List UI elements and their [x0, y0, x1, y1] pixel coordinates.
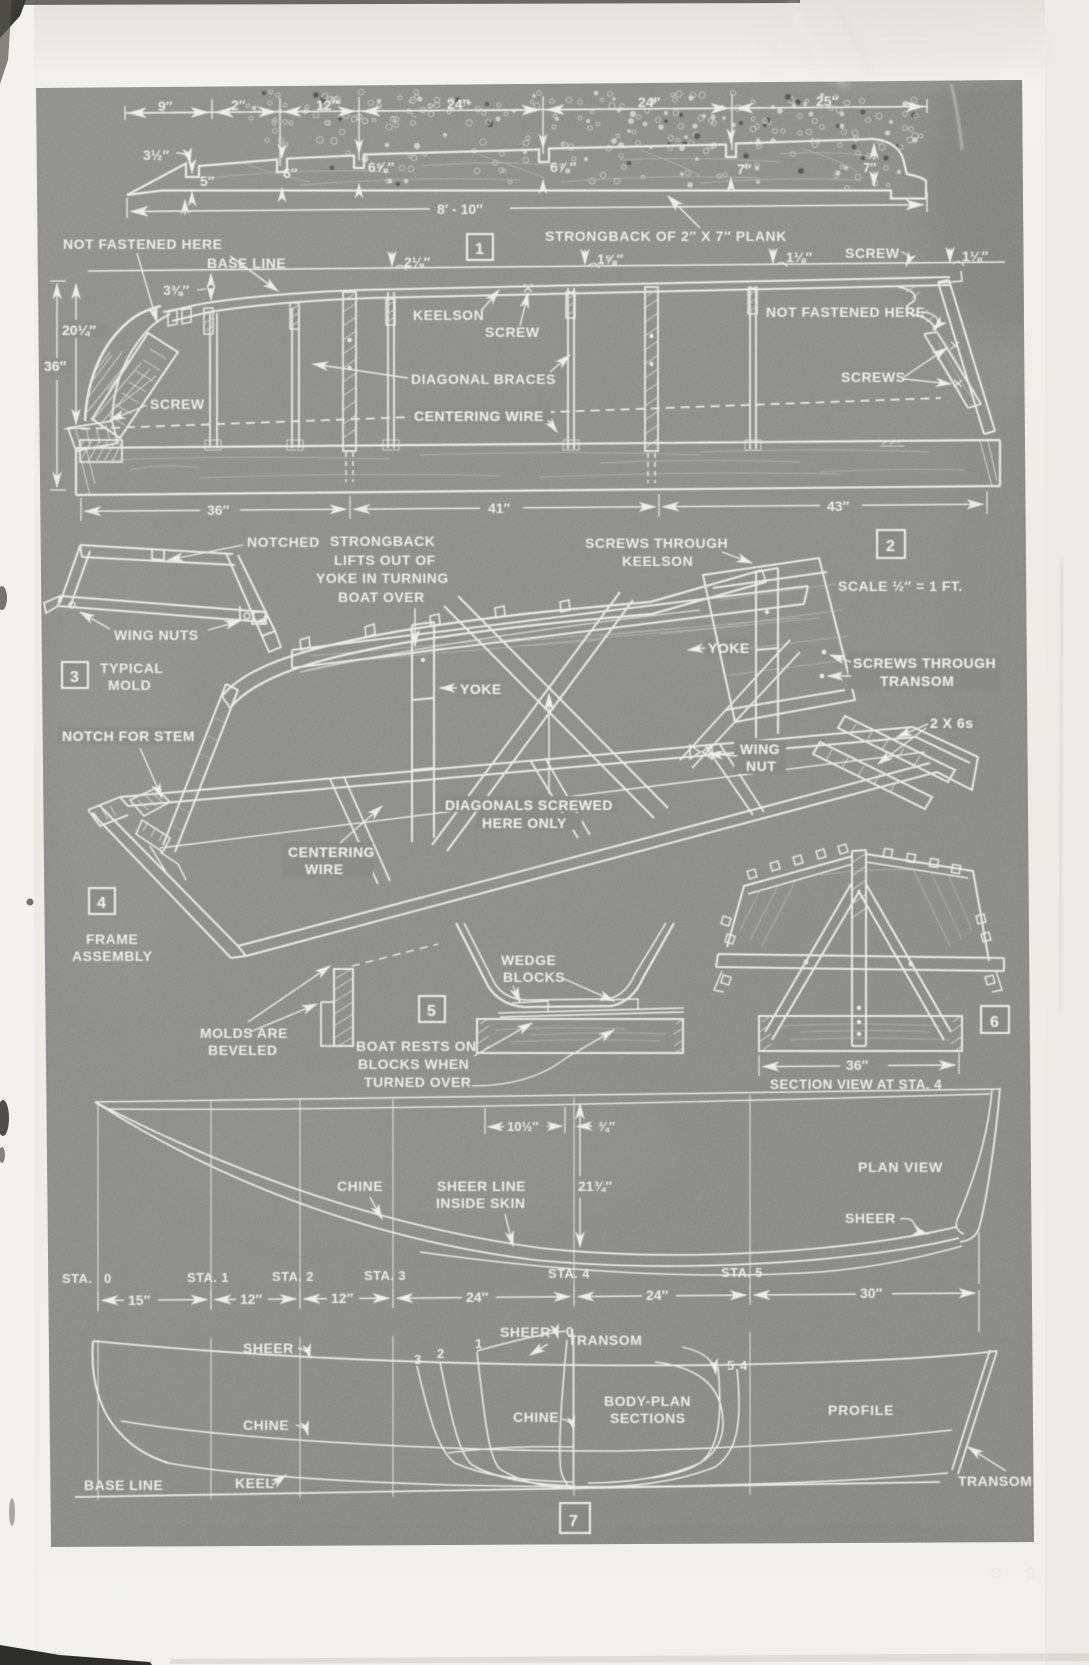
svg-text:CHINE: CHINE [337, 1178, 383, 1194]
svg-text:5″: 5″ [200, 173, 215, 189]
svg-text:25″: 25″ [816, 93, 839, 109]
svg-text:SCALE ½″ = 1 FT.: SCALE ½″ = 1 FT. [838, 578, 963, 594]
svg-text:6⅝″: 6⅝″ [368, 159, 394, 175]
svg-text:STA. 1: STA. 1 [187, 1270, 229, 1285]
svg-text:BASE LINE: BASE LINE [207, 255, 286, 271]
svg-text:DIAGONAL BRACES: DIAGONAL BRACES [411, 371, 556, 387]
svg-text:24″: 24″ [447, 96, 470, 112]
svg-text:INSIDE SKIN: INSIDE SKIN [436, 1195, 526, 1211]
svg-text:SCREW: SCREW [845, 245, 900, 261]
svg-text:NOTCHED: NOTCHED [247, 534, 320, 550]
svg-text:HERE ONLY: HERE ONLY [482, 815, 567, 831]
svg-text:NOT FASTENED HERE: NOT FASTENED HERE [63, 236, 222, 252]
svg-text:2″: 2″ [231, 97, 246, 113]
svg-text:24″: 24″ [466, 1289, 489, 1305]
svg-text:SCREWS THROUGH: SCREWS THROUGH [585, 535, 728, 551]
svg-text:7: 7 [569, 1513, 578, 1530]
svg-text:NOTCH FOR STEM: NOTCH FOR STEM [62, 728, 195, 744]
svg-text:CHINE: CHINE [513, 1409, 559, 1425]
svg-text:2⅛″: 2⅛″ [404, 254, 430, 270]
svg-text:30″: 30″ [860, 1285, 883, 1301]
svg-text:1⅛″: 1⅛″ [786, 249, 812, 265]
svg-text:BLOCKS WHEN: BLOCKS WHEN [358, 1056, 469, 1072]
svg-text:ASSEMBLY: ASSEMBLY [72, 948, 153, 964]
svg-text:DIAGONALS SCREWED: DIAGONALS SCREWED [445, 797, 613, 813]
svg-text:5: 5 [427, 1003, 436, 1020]
svg-text:BOAT RESTS ON: BOAT RESTS ON [356, 1038, 477, 1054]
svg-text:YOKE IN TURNING: YOKE IN TURNING [316, 570, 449, 586]
svg-text:12″: 12″ [240, 1291, 263, 1307]
svg-text:9″: 9″ [158, 98, 173, 114]
svg-text:21¾″: 21¾″ [578, 1178, 612, 1194]
svg-text:SCREW: SCREW [150, 396, 205, 412]
svg-text:2 X 6s: 2 X 6s [930, 715, 973, 731]
svg-text:24″: 24″ [638, 94, 661, 110]
svg-text:BEVELED: BEVELED [208, 1042, 278, 1058]
svg-text:TRANSOM: TRANSOM [568, 1332, 642, 1348]
svg-text:BASE LINE: BASE LINE [84, 1477, 163, 1493]
svg-text:YOKE: YOKE [708, 640, 750, 656]
svg-text:24″: 24″ [646, 1287, 669, 1303]
svg-text:NUT: NUT [746, 758, 776, 774]
svg-text:STA. 3: STA. 3 [364, 1268, 406, 1283]
svg-text:TURNED OVER: TURNED OVER [364, 1074, 471, 1090]
svg-text:2: 2 [437, 1346, 444, 1361]
svg-text:STA. 4: STA. 4 [548, 1266, 590, 1281]
svg-text:STA.: STA. [62, 1271, 92, 1286]
svg-text:KEELSON: KEELSON [622, 553, 693, 569]
svg-text:KEELSON: KEELSON [413, 307, 484, 323]
svg-text:BOAT OVER: BOAT OVER [338, 589, 425, 605]
svg-text:0: 0 [104, 1271, 112, 1286]
svg-text:SECTIONS: SECTIONS [610, 1410, 686, 1426]
svg-text:SHEER: SHEER [845, 1210, 896, 1226]
svg-text:6⅞″: 6⅞″ [550, 159, 576, 175]
svg-text:10½″: 10½″ [507, 1119, 539, 1134]
svg-text:G: G [990, 1565, 1002, 1582]
svg-text:BLOCKS: BLOCKS [503, 969, 565, 985]
svg-text:STA. 5: STA. 5 [721, 1265, 763, 1280]
svg-text:12″: 12″ [316, 97, 339, 113]
svg-text:20¼″: 20¼″ [62, 322, 96, 338]
svg-text:YOKE: YOKE [460, 681, 502, 697]
svg-text:36″: 36″ [846, 1057, 869, 1073]
svg-text:CENTERING WIRE: CENTERING WIRE [414, 408, 544, 424]
svg-text:4: 4 [97, 895, 106, 912]
svg-text:BODY-PLAN: BODY-PLAN [604, 1393, 691, 1409]
svg-text:TRANSOM: TRANSOM [880, 673, 954, 689]
svg-text:3⅜″: 3⅜″ [163, 282, 189, 298]
svg-text:4: 4 [740, 1358, 748, 1373]
svg-text:8′ - 10″: 8′ - 10″ [437, 201, 483, 217]
svg-text:¾″: ¾″ [598, 1119, 615, 1134]
svg-text:1: 1 [475, 241, 484, 258]
svg-text:SCREW: SCREW [485, 324, 540, 340]
svg-text:TYPICAL: TYPICAL [100, 660, 163, 676]
svg-text:6: 6 [990, 1014, 999, 1031]
svg-text:SHEER: SHEER [243, 1340, 294, 1356]
svg-text:5: 5 [727, 1358, 734, 1373]
svg-text:FRAME: FRAME [86, 931, 138, 947]
svg-text:STRONGBACK: STRONGBACK [330, 533, 435, 549]
svg-text:MOLD: MOLD [108, 677, 151, 693]
svg-text:12″: 12″ [331, 1290, 354, 1306]
svg-text:36″: 36″ [44, 358, 67, 374]
svg-text:TRANSOM: TRANSOM [958, 1473, 1032, 1489]
svg-text:1⅝″: 1⅝″ [597, 251, 623, 267]
svg-text:1: 1 [475, 1336, 482, 1351]
svg-text:7″: 7″ [737, 161, 752, 177]
svg-text:1⅛″: 1⅛″ [962, 248, 988, 264]
svg-text:KEEL: KEEL [235, 1475, 274, 1491]
svg-text:3: 3 [414, 1352, 421, 1367]
svg-text:3½″: 3½″ [143, 147, 169, 163]
svg-text:WIRE: WIRE [305, 861, 344, 877]
svg-text:2: 2 [886, 538, 895, 555]
svg-text:WING: WING [740, 741, 780, 757]
svg-text:SHEER LINE: SHEER LINE [437, 1178, 526, 1194]
svg-text:CHINE: CHINE [243, 1417, 289, 1433]
svg-text:NOT FASTENED HERE: NOT FASTENED HERE [766, 304, 925, 320]
svg-text:PLAN VIEW: PLAN VIEW [858, 1159, 943, 1175]
svg-text:41″: 41″ [488, 500, 511, 516]
svg-text:36″: 36″ [207, 502, 230, 518]
svg-text:STRONGBACK OF 2″ X 7″ PLANK: STRONGBACK OF 2″ X 7″ PLANK [545, 228, 787, 244]
svg-text:PROFILE: PROFILE [828, 1402, 894, 1418]
svg-text:LIFTS OUT OF: LIFTS OUT OF [334, 552, 436, 568]
svg-text:9: 9 [1025, 1564, 1036, 1585]
svg-text:CENTERING: CENTERING [288, 844, 375, 860]
svg-text:SCREWS: SCREWS [841, 369, 905, 385]
svg-text:WING NUTS: WING NUTS [114, 627, 199, 643]
svg-text:6″: 6″ [283, 165, 298, 181]
svg-text:SHEER: SHEER [500, 1324, 551, 1340]
svg-text:WEDGE: WEDGE [501, 952, 556, 968]
svg-text:43″: 43″ [827, 498, 850, 514]
svg-text:3: 3 [70, 669, 79, 686]
svg-text:STA. 2: STA. 2 [272, 1269, 314, 1284]
svg-text:SCREWS THROUGH: SCREWS THROUGH [853, 655, 996, 671]
svg-text:MOLDS ARE: MOLDS ARE [200, 1025, 288, 1041]
svg-text:15″: 15″ [128, 1292, 151, 1308]
